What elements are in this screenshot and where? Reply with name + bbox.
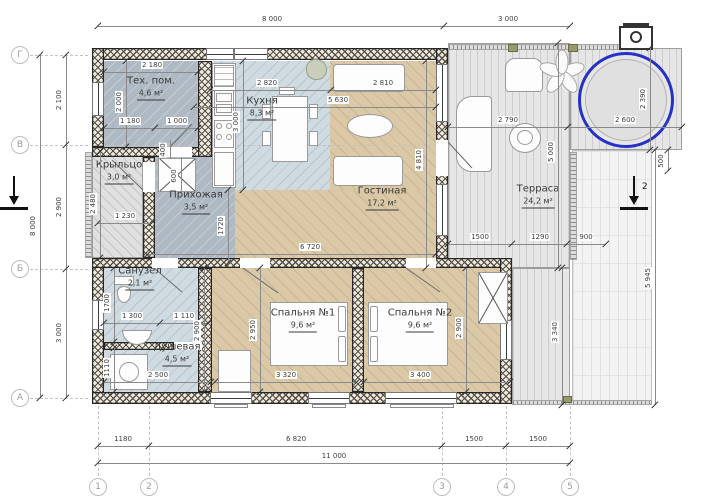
room-area-living-room: 17,2 м² bbox=[365, 198, 399, 211]
dim-label: 3 000 bbox=[232, 111, 240, 133]
room-label-kitchen: Кухня8,3 м² bbox=[246, 96, 278, 121]
axis-bubble-Б: Б bbox=[11, 260, 29, 278]
section-arrow-icon bbox=[629, 196, 639, 205]
dim-label: 1 000 bbox=[166, 117, 188, 125]
dim-label: 400 bbox=[159, 142, 167, 157]
dim-line bbox=[98, 26, 570, 27]
dim-label: 2 900 bbox=[193, 320, 201, 342]
dim-line bbox=[448, 244, 606, 245]
axis-bubble-2: 2 bbox=[140, 478, 158, 496]
dim-label: 900 bbox=[578, 233, 593, 241]
axis-bubble-Г: Г bbox=[11, 46, 29, 64]
dim-line bbox=[181, 158, 182, 192]
dim-label: 1 180 bbox=[119, 117, 141, 125]
dim-label: 8 000 bbox=[261, 15, 283, 23]
room-name-shower-room: Душевая bbox=[153, 342, 200, 354]
dim-label: 5 630 bbox=[327, 96, 349, 104]
dim-label: 3 000 bbox=[497, 15, 519, 23]
axis-bubble-В: В bbox=[11, 136, 29, 154]
dim-label: 1290 bbox=[530, 233, 550, 241]
room-label-bedroom-2: Спальня №29,6 м² bbox=[388, 308, 452, 333]
dim-label: 3 000 bbox=[55, 322, 63, 344]
dim-line bbox=[104, 128, 198, 129]
dim-line bbox=[170, 140, 171, 158]
room-area-hallway: 3,5 м² bbox=[182, 202, 211, 215]
room-label-porch: Крыльцо3,0 м² bbox=[96, 160, 143, 185]
annotation-overlay bbox=[0, 0, 711, 502]
dim-line bbox=[194, 107, 436, 108]
room-label-hallway: Прихожая3,5 м² bbox=[169, 190, 223, 215]
dim-label: 2 790 bbox=[497, 116, 519, 124]
room-label-terrace: Терраса24,2 м² bbox=[517, 184, 560, 209]
section-arrow-icon bbox=[9, 196, 19, 205]
dim-line bbox=[558, 43, 559, 268]
room-name-bedroom-1: Спальня №1 bbox=[271, 308, 335, 320]
dim-line bbox=[114, 268, 115, 342]
dim-label: 3 320 bbox=[275, 371, 297, 379]
dim-label: 2 820 bbox=[256, 79, 278, 87]
room-label-shower-room: Душевая4,5 м² bbox=[153, 342, 200, 367]
section-marker bbox=[633, 176, 635, 198]
section-label: 2 bbox=[642, 182, 648, 192]
dim-line bbox=[426, 61, 427, 268]
dim-label: 2 500 bbox=[147, 371, 169, 379]
room-area-bedroom-1: 9,6 м² bbox=[289, 320, 318, 333]
floor-plan: 8 0003 00011806 8201500150011 0002 7902 … bbox=[0, 0, 711, 502]
room-name-porch: Крыльцо bbox=[96, 160, 143, 172]
dim-label: 500 bbox=[657, 153, 665, 168]
dim-label: 2 000 bbox=[115, 91, 123, 113]
dim-line bbox=[98, 446, 570, 447]
dim-line bbox=[98, 223, 152, 224]
room-area-tech-room: 4,6 м² bbox=[137, 88, 166, 101]
dim-label: 2 180 bbox=[141, 61, 163, 69]
room-name-bedroom-2: Спальня №2 bbox=[388, 308, 452, 320]
dim-label: 2 950 bbox=[249, 319, 257, 341]
dim-label: 2 810 bbox=[372, 79, 394, 87]
dim-label: 3 400 bbox=[409, 371, 431, 379]
room-label-bathroom: Санузел2,1 м² bbox=[118, 266, 161, 291]
dim-line bbox=[98, 463, 570, 464]
axis-bubble-1: 1 bbox=[89, 478, 107, 496]
axis-bubble-3: 3 bbox=[433, 478, 451, 496]
dim-label: 6 820 bbox=[285, 435, 307, 443]
dim-line bbox=[243, 61, 244, 190]
dim-label: 2 390 bbox=[639, 88, 647, 110]
dim-label: 5 945 bbox=[644, 267, 652, 289]
dim-label: 5 000 bbox=[547, 141, 555, 163]
axis-bubble-А: А bbox=[11, 389, 29, 407]
dim-label: 8 000 bbox=[29, 215, 37, 237]
dim-line bbox=[466, 268, 467, 392]
dim-line bbox=[364, 382, 510, 383]
room-label-bedroom-1: Спальня №19,6 м² bbox=[271, 308, 335, 333]
room-label-living-room: Гостиная17,2 м² bbox=[358, 186, 407, 211]
dim-line bbox=[114, 348, 115, 392]
dim-label: 1500 bbox=[464, 435, 484, 443]
dim-line bbox=[260, 268, 261, 392]
room-area-bedroom-2: 9,6 м² bbox=[406, 320, 435, 333]
room-area-kitchen: 8,3 м² bbox=[248, 108, 277, 121]
dim-label: 2 900 bbox=[455, 317, 463, 339]
dim-label: 2 900 bbox=[55, 196, 63, 218]
dim-label: 11 000 bbox=[321, 452, 348, 460]
dim-line bbox=[40, 55, 41, 398]
dim-line bbox=[228, 190, 229, 263]
room-area-terrace: 24,2 м² bbox=[521, 196, 555, 209]
section-marker bbox=[620, 207, 648, 210]
dim-label: 1 110 bbox=[173, 312, 195, 320]
dim-label: 3 340 bbox=[551, 321, 559, 343]
dim-label: 6 720 bbox=[299, 243, 321, 251]
room-area-shower-room: 4,5 м² bbox=[163, 354, 192, 367]
dim-label: 1 230 bbox=[114, 212, 136, 220]
dim-line bbox=[148, 254, 436, 255]
dim-line bbox=[126, 61, 127, 147]
room-area-porch: 3,0 м² bbox=[105, 172, 134, 185]
room-area-bathroom: 2,1 м² bbox=[126, 278, 155, 291]
dim-line bbox=[104, 382, 211, 383]
axis-bubble-5: 5 bbox=[561, 478, 579, 496]
dim-line bbox=[204, 268, 205, 392]
section-marker bbox=[0, 207, 28, 210]
dim-label: 1500 bbox=[528, 435, 548, 443]
room-name-bathroom: Санузел bbox=[118, 266, 161, 278]
room-name-hallway: Прихожая bbox=[169, 190, 223, 202]
room-name-tech-room: Тех. пом. bbox=[127, 76, 175, 88]
dim-line bbox=[655, 150, 656, 405]
dim-label: 2 480 bbox=[89, 193, 97, 215]
dim-label: 2 600 bbox=[614, 116, 636, 124]
dim-label: 1700 bbox=[103, 293, 111, 313]
section-marker bbox=[13, 176, 15, 198]
dim-label: 1500 bbox=[470, 233, 490, 241]
dim-line bbox=[650, 48, 651, 150]
dim-line bbox=[66, 55, 67, 398]
room-name-living-room: Гостиная bbox=[358, 186, 407, 198]
dim-label: 1 300 bbox=[121, 312, 143, 320]
dim-line bbox=[100, 152, 101, 258]
dim-label: 1180 bbox=[113, 435, 133, 443]
axis-bubble-4: 4 bbox=[497, 478, 515, 496]
dim-label: 2 100 bbox=[55, 89, 63, 111]
dim-label: 1110 bbox=[103, 358, 111, 378]
dim-line bbox=[104, 72, 198, 73]
dim-label: 600 bbox=[170, 168, 178, 183]
room-name-terrace: Терраса bbox=[517, 184, 560, 196]
dim-label: 1720 bbox=[217, 216, 225, 236]
room-name-kitchen: Кухня bbox=[246, 96, 278, 108]
room-label-tech-room: Тех. пом.4,6 м² bbox=[127, 76, 175, 101]
dim-line bbox=[215, 382, 357, 383]
dim-line bbox=[562, 268, 563, 405]
dim-label: 4 810 bbox=[415, 149, 423, 171]
